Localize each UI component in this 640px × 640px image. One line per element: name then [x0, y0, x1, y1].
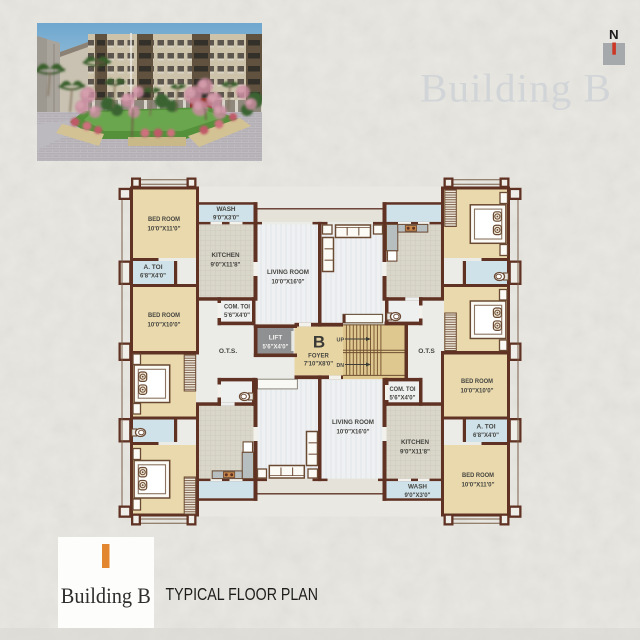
svg-text:9'0"X11'8": 9'0"X11'8" — [211, 262, 241, 269]
svg-text:Building B: Building B — [61, 583, 151, 608]
svg-text:10'0"X11'0": 10'0"X11'0" — [148, 226, 181, 233]
svg-text:10'0"X16'0": 10'0"X16'0" — [272, 279, 305, 286]
svg-text:6'8"X4'0": 6'8"X4'0" — [473, 433, 499, 439]
svg-text:A. TOI: A. TOI — [144, 264, 163, 271]
svg-text:WASH: WASH — [408, 484, 427, 491]
svg-text:5'6"X4'0": 5'6"X4'0" — [263, 345, 289, 351]
svg-text:BED ROOM: BED ROOM — [461, 378, 493, 385]
svg-text:WASH: WASH — [217, 206, 236, 213]
svg-text:COM. TOI: COM. TOI — [224, 304, 250, 311]
svg-text:LIVING ROOM: LIVING ROOM — [267, 269, 309, 276]
svg-text:10'0"X16'0": 10'0"X16'0" — [337, 429, 370, 436]
svg-text:10'0"X11'0": 10'0"X11'0" — [462, 482, 495, 489]
svg-text:6'8"X4'0": 6'8"X4'0" — [140, 274, 166, 280]
svg-text:N: N — [609, 27, 619, 42]
svg-text:KITCHEN: KITCHEN — [212, 252, 240, 259]
svg-text:B: B — [313, 333, 325, 352]
svg-text:BED ROOM: BED ROOM — [148, 216, 180, 223]
svg-text:KITCHEN: KITCHEN — [401, 439, 429, 446]
svg-text:COM. TOI: COM. TOI — [390, 386, 416, 393]
svg-text:A. TOI: A. TOI — [477, 424, 496, 431]
svg-text:BED ROOM: BED ROOM — [148, 312, 180, 319]
svg-text:5'6"X4'0": 5'6"X4'0" — [224, 313, 250, 319]
svg-text:10'0"X10'0": 10'0"X10'0" — [148, 322, 181, 329]
svg-text:TYPICAL FLOOR PLAN: TYPICAL FLOOR PLAN — [166, 584, 319, 604]
svg-text:9'0"X3'0": 9'0"X3'0" — [405, 493, 431, 499]
svg-text:UP: UP — [337, 337, 345, 343]
svg-text:Building B: Building B — [420, 66, 612, 111]
svg-text:9'0"X3'0": 9'0"X3'0" — [213, 216, 239, 222]
svg-text:10'0"X10'0": 10'0"X10'0" — [461, 388, 494, 395]
svg-text:BED ROOM: BED ROOM — [462, 472, 494, 479]
svg-text:7'10"X8'0": 7'10"X8'0" — [304, 362, 333, 368]
svg-text:LIVING ROOM: LIVING ROOM — [332, 419, 374, 426]
svg-text:5'6"X4'0": 5'6"X4'0" — [390, 396, 416, 402]
svg-text:9'0"X11'8": 9'0"X11'8" — [400, 449, 430, 456]
svg-text:LIFT: LIFT — [269, 335, 283, 342]
svg-text:O.T.S: O.T.S — [418, 348, 435, 355]
svg-text:O.T.S.: O.T.S. — [219, 348, 237, 355]
svg-text:FOYER: FOYER — [308, 354, 329, 360]
svg-text:DN: DN — [337, 363, 345, 369]
